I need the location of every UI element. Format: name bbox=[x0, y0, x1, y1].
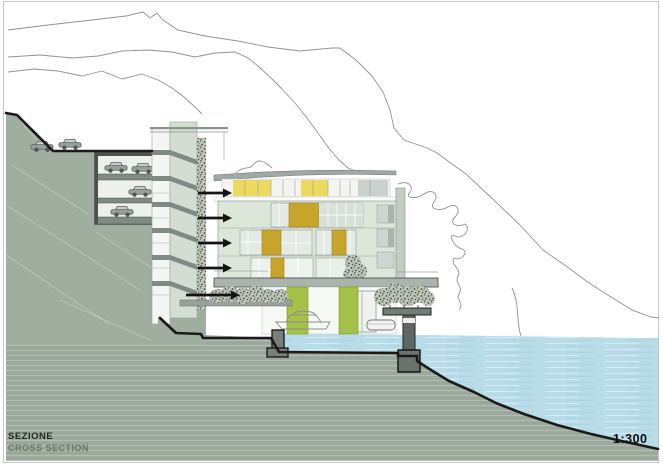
garage-back-wall bbox=[95, 152, 98, 224]
lime-column bbox=[287, 287, 308, 334]
boat-icon bbox=[367, 320, 395, 330]
cross-section-drawing: SEZIONE CROSS SECTION 1:300 bbox=[0, 0, 663, 465]
side-window bbox=[377, 252, 394, 268]
side-wall-return bbox=[396, 188, 405, 285]
drawing-subtitle: CROSS SECTION bbox=[8, 443, 89, 453]
pier-column-band bbox=[403, 318, 415, 323]
top-canopy bbox=[150, 127, 228, 129]
drawing-title: SEZIONE bbox=[8, 432, 53, 443]
penthouse-gray-panel bbox=[358, 180, 388, 196]
section-svg bbox=[0, 0, 663, 465]
penthouse-glass-yellow bbox=[301, 180, 328, 196]
parking-garage bbox=[95, 152, 160, 224]
ochre-panel bbox=[262, 230, 281, 255]
lime-column bbox=[339, 287, 358, 334]
terrace-deck bbox=[214, 278, 438, 287]
ochre-panel bbox=[289, 203, 319, 227]
foundation-pier bbox=[272, 330, 284, 350]
stair-zone bbox=[152, 128, 170, 324]
green-wall bbox=[197, 138, 206, 310]
scale-label: 1:300 bbox=[613, 432, 647, 446]
penthouse-glass-yellow bbox=[233, 180, 271, 196]
side-window-dark-pane bbox=[388, 205, 394, 223]
garage-roof-slab bbox=[95, 152, 160, 156]
ochre-panel bbox=[332, 230, 346, 255]
side-window-dark-pane bbox=[388, 229, 394, 247]
pier-platform bbox=[383, 308, 431, 315]
